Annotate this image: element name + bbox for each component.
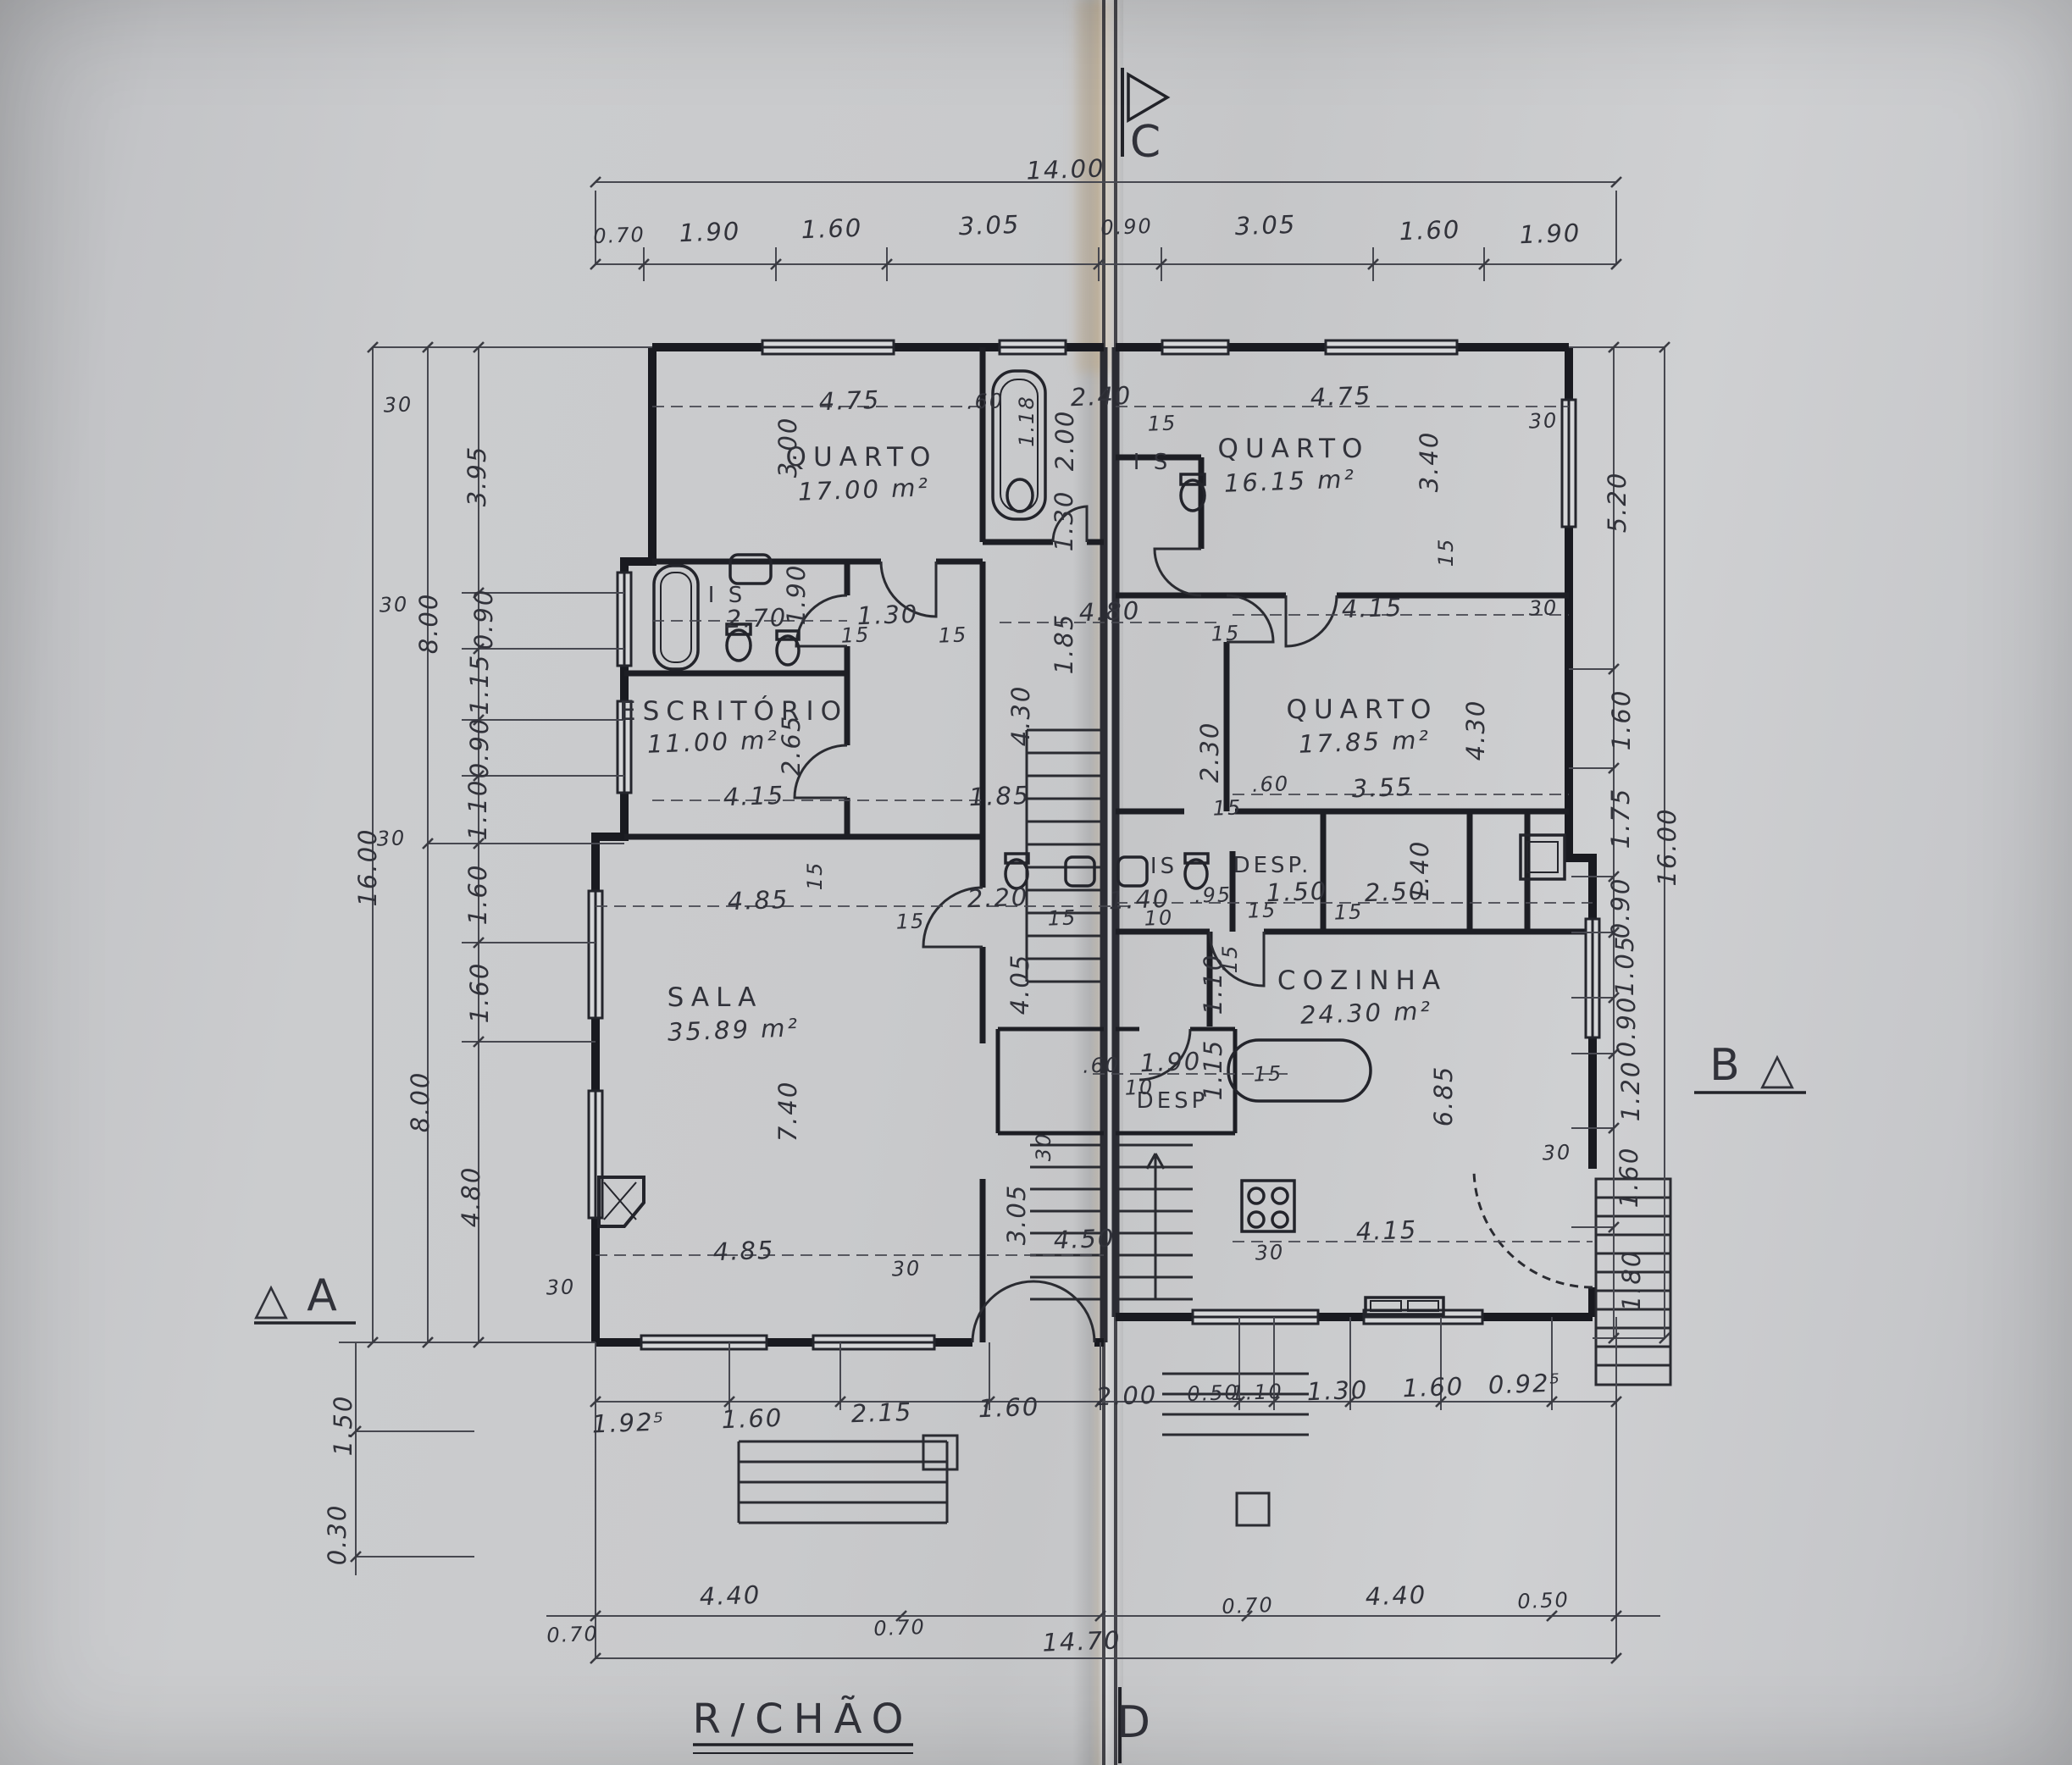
dim-quarto3-height: 4.30 (1461, 700, 1490, 761)
dim-top-seg: 1.90 (679, 217, 741, 248)
dim-bottom-seg: 1.60 (978, 1392, 1040, 1424)
wall-thickness: 15 (1253, 1061, 1283, 1086)
dim-right: 0.90 (1612, 996, 1641, 1058)
wall-thickness: 15 (1434, 538, 1458, 567)
dim-right-16: 16.00 (1653, 807, 1681, 886)
floor-title: R/CHÃO (693, 1696, 914, 1743)
dim-hall-low: 1.85 (968, 781, 1031, 812)
dim-sala-bottom: 4.85 (712, 1236, 775, 1267)
dim-bottom-outer: 4.40 (699, 1580, 762, 1612)
dim-left: 0.90 (465, 717, 494, 779)
dim-overall-width: 14.00 (1026, 153, 1105, 185)
dim-cozinha-width: 4.15 (1355, 1215, 1418, 1247)
dim-left: 0.90 (469, 589, 498, 650)
dim-left: 1.10 (463, 779, 492, 841)
dim-top-seg: 0.90 (1100, 214, 1153, 240)
dim-hall-bottom: 4.50 (1053, 1224, 1116, 1255)
wall-thickness: 10 (1144, 905, 1174, 930)
dim-right: 1.20 (1616, 1060, 1645, 1122)
dim-seg: .60 (1251, 772, 1289, 797)
dim-quarto1-width: 4.75 (818, 385, 881, 417)
dim-bottom-outer: 0.70 (873, 1615, 926, 1641)
wall-thickness: 15 (1211, 621, 1241, 645)
dim-top-seg: 1.90 (1519, 219, 1582, 250)
dim-bottom-outer: 0.70 (1222, 1593, 1274, 1618)
room-area-quarto2: 16.15 m² (1223, 464, 1356, 497)
dim-escritorio-height: 2.65 (777, 715, 806, 777)
section-marker-a-triangle: △ (254, 1274, 291, 1325)
wall-thickness: 15 (840, 622, 871, 647)
dim-seg: 2.40 (1070, 381, 1133, 412)
dim-corridor-width: 2.20 (967, 882, 1029, 914)
dim-bottom-seg: 1.60 (721, 1403, 784, 1435)
wall-thickness: 30 (376, 826, 407, 850)
dim-seg: .60 (966, 389, 1004, 414)
wall-thickness: 30 (546, 1275, 576, 1299)
dim-top-seg: 1.60 (801, 213, 863, 245)
wall-thickness: 15 (1218, 944, 1242, 974)
room-area-quarto3: 17.85 m² (1298, 725, 1431, 758)
dim-quarto3-bottom: 3.55 (1351, 772, 1414, 804)
dim-sala-height: 7.40 (773, 1081, 802, 1143)
dim-bottom-outer: 0.70 (546, 1622, 599, 1647)
room-area-quarto1: 17.00 m² (797, 473, 930, 506)
dim-bottom-seg: 1.30 (1306, 1375, 1369, 1407)
wall-thickness: 15 (1047, 905, 1078, 930)
dim-bottom-seg: 1.92⁵ (591, 1408, 665, 1439)
dim-corridor-height: 4.05 (1006, 954, 1034, 1015)
room-label-quarto1: QUARTO (786, 442, 938, 473)
section-marker-b-triangle: △ (1760, 1043, 1798, 1094)
dim-left: 1.15 (465, 654, 494, 716)
wall-thickness: 15 (1333, 899, 1364, 924)
dim-escritorio-width: 4.15 (723, 781, 785, 812)
dim-bath-depth: 2.00 (1050, 410, 1079, 472)
wall-thickness: 30 (891, 1256, 922, 1281)
dim-left-low: 1.50 (329, 1395, 357, 1457)
dim-corridor-left: 4.30 (1006, 685, 1035, 747)
blueprint-photo: 14.00 0.70 1.90 1.60 3.05 0.90 3.05 1.60… (0, 0, 2072, 1765)
room-area-cozinha: 24.30 m² (1299, 996, 1432, 1029)
dim-desp-depth: 1.15 (1199, 1039, 1227, 1101)
wall-thickness: 30 (1032, 1132, 1055, 1162)
room-label-is-mid: IS (1150, 854, 1177, 879)
wall-thickness: 30 (1542, 1140, 1572, 1165)
room-area-sala: 35.89 m² (667, 1013, 800, 1046)
dim-left-8: 8.00 (414, 593, 443, 655)
dim-stair: 2.30 (1195, 722, 1224, 783)
dim-right: 1.80 (1617, 1250, 1646, 1312)
wall-thickness: 15 (803, 861, 827, 891)
dim-left: 4.80 (457, 1166, 485, 1228)
dim-right: 1.60 (1607, 689, 1636, 751)
dim-cozinha-height: 6.85 (1429, 1065, 1458, 1127)
wall-thickness: 30 (1528, 408, 1559, 433)
dim-right: 1.75 (1606, 788, 1635, 849)
room-label-sala: SALA (668, 982, 763, 1013)
dim-bottom-seg: 1.10 (1231, 1380, 1283, 1405)
wall-thickness: 15 (1247, 898, 1277, 922)
wall-thickness: 30 (1255, 1240, 1285, 1264)
section-marker-d: D (1116, 1697, 1154, 1748)
room-label-quarto3: QUARTO (1287, 694, 1438, 725)
dim-right: 1.60 (1615, 1147, 1643, 1209)
dim-top-seg: 3.05 (958, 210, 1021, 241)
dim-bottom-outer: 0.50 (1517, 1588, 1570, 1613)
room-label-desp-upper: DESP. (1233, 853, 1312, 878)
wall-thickness: 30 (383, 392, 413, 417)
wall-thickness: 30 (1528, 595, 1559, 620)
dim-right: 1.05 (1610, 935, 1639, 997)
dim-wc2: .95 (1194, 882, 1232, 908)
dim-tub: 1.18 (1015, 395, 1039, 446)
dim-left: 3.95 (463, 445, 491, 507)
dim-bottom-seg: 2.00 (1095, 1380, 1158, 1412)
dim-right: 5.20 (1603, 472, 1632, 534)
dim-hall-width: 4.80 (1078, 596, 1141, 628)
room-label-is-top: I S (1133, 450, 1171, 475)
dim-hall-depth: 1.85 (1050, 613, 1078, 675)
dim-closet-depth: 1.40 (1405, 840, 1434, 902)
dim-is-height: 1.90 (782, 564, 811, 626)
dim-quarto1-height: 3.00 (773, 417, 802, 479)
dim-left-low: 0.30 (323, 1504, 352, 1566)
section-marker-a: A (307, 1270, 341, 1321)
dim-bottom-seg: 2.15 (850, 1397, 913, 1429)
dim-right: 0.90 (1606, 877, 1635, 939)
wall-thickness: 15 (895, 909, 926, 933)
dim-top-seg: 0.70 (593, 223, 645, 248)
dim-top-seg: 3.05 (1234, 210, 1297, 241)
dim-bottom-seg: 1.60 (1402, 1372, 1465, 1403)
dim-bath-width: 1.30 (1050, 490, 1078, 552)
wall-thickness: 30 (379, 592, 409, 617)
dim-left: 1.60 (463, 864, 492, 926)
dim-left-8: 8.00 (406, 1071, 435, 1133)
dim-quarto2-height: 3.40 (1415, 431, 1443, 493)
dim-seg: .60 (1082, 1053, 1120, 1078)
wall-thickness: 15 (1147, 411, 1177, 435)
dim-porch: 3.05 (1002, 1184, 1031, 1246)
dim-sala-width: 4.85 (727, 885, 789, 916)
dim-bottom-overall: 14.70 (1042, 1625, 1122, 1657)
dim-quarto2-width: 4.75 (1310, 381, 1372, 412)
dim-is-width: 2.70 (725, 603, 788, 634)
dim-left: 1.60 (465, 962, 494, 1024)
wall-thickness: 15 (1212, 795, 1243, 820)
section-marker-b: B (1709, 1040, 1743, 1091)
wall-thickness: 15 (938, 622, 968, 647)
dim-bottom-outer: 4.40 (1365, 1580, 1427, 1612)
room-label-cozinha: COZINHA (1277, 965, 1447, 996)
dim-desp-low: 1.90 (1139, 1047, 1202, 1078)
annotation-layer: 14.00 0.70 1.90 1.60 3.05 0.90 3.05 1.60… (0, 0, 2072, 1765)
dim-quarto3-width: 4.15 (1341, 593, 1404, 624)
room-label-desp-lower: DESP (1137, 1088, 1209, 1114)
room-label-quarto2: QUARTO (1218, 434, 1370, 464)
section-marker-c: C (1130, 117, 1164, 168)
room-label-escritorio: ESCRITÓRIO (619, 696, 848, 727)
dim-top-seg: 1.60 (1399, 215, 1461, 246)
room-area-escritorio: 11.00 m² (646, 725, 779, 758)
dim-bottom-seg: 0.92⁵ (1488, 1369, 1561, 1400)
